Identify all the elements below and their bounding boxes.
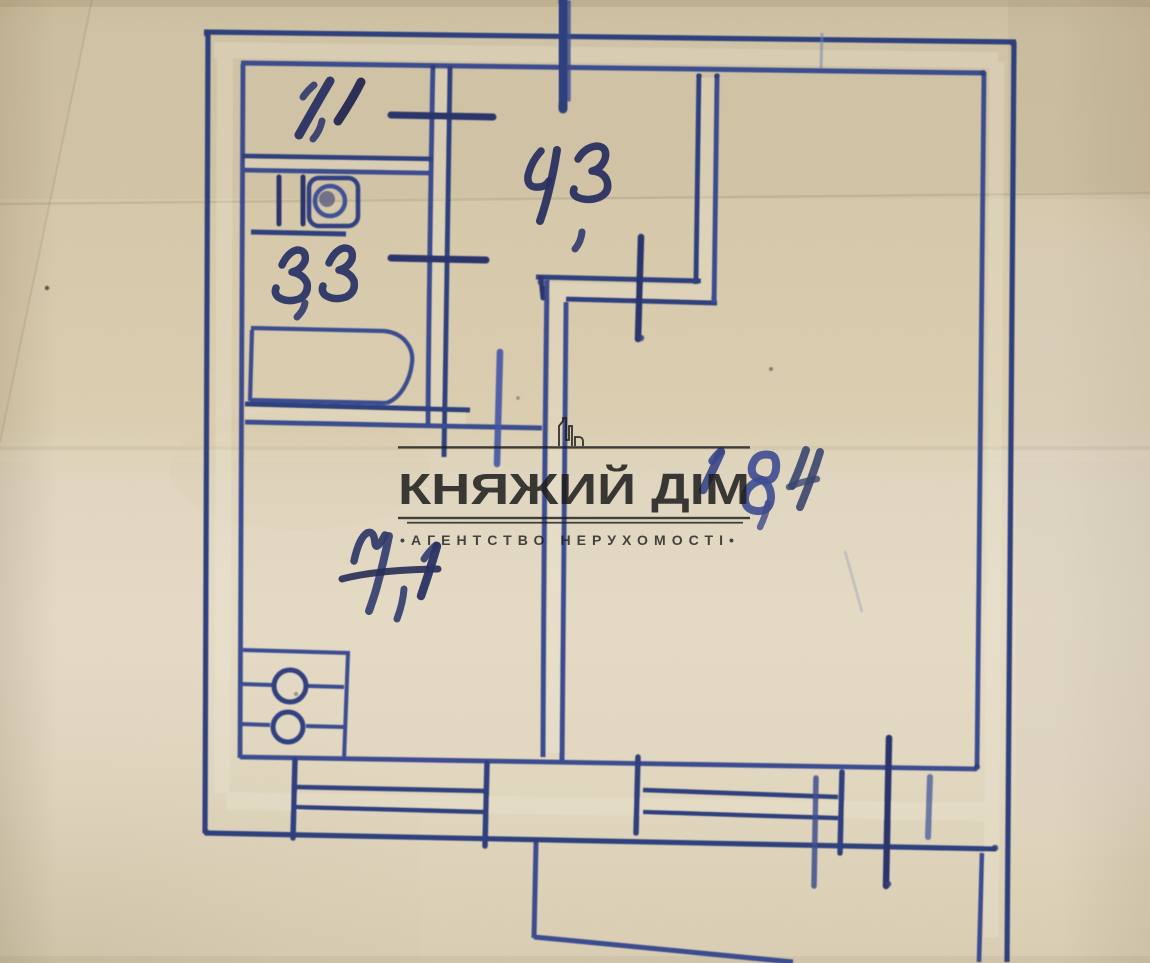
svg-text:•АГЕНТСТВО НЕРУХОМОСТІ•: •АГЕНТСТВО НЕРУХОМОСТІ•: [400, 532, 740, 548]
svg-text:КНЯЖИЙ ДІМ: КНЯЖИЙ ДІМ: [398, 463, 750, 514]
